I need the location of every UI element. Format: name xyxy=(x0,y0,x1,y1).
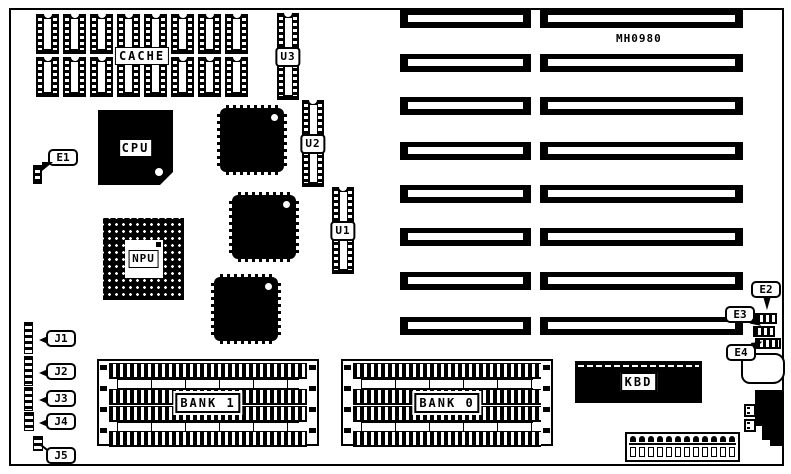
j2-callout: J2 xyxy=(46,363,76,380)
cache-chip xyxy=(225,57,248,97)
power-pin xyxy=(639,436,645,442)
expansion-slot xyxy=(400,185,531,203)
expansion-slot xyxy=(540,228,743,246)
simm-socket-row xyxy=(353,363,541,379)
header-j2 xyxy=(24,356,33,386)
simm-socket-row xyxy=(109,363,307,379)
power-socket xyxy=(630,447,636,457)
simm-detail-row xyxy=(117,379,299,389)
power-pin xyxy=(684,436,690,442)
cache-chip xyxy=(63,57,86,97)
cache-chip xyxy=(90,57,113,97)
expansion-slot xyxy=(400,97,531,115)
expansion-slot xyxy=(400,142,531,160)
cache-column xyxy=(36,14,59,97)
qfp-chip-body xyxy=(214,277,278,341)
power-pin xyxy=(648,436,654,442)
qfp-chip-1 xyxy=(217,105,287,175)
cache-chip xyxy=(171,14,194,54)
qfp-chip-3 xyxy=(211,274,281,344)
expansion-slot xyxy=(540,10,743,28)
cache-label: CACHE xyxy=(115,47,169,65)
power-socket xyxy=(702,447,708,457)
e1-label: E1 xyxy=(56,151,69,164)
power-connector xyxy=(625,432,740,462)
u1-label: U1 xyxy=(330,221,355,241)
power-pin xyxy=(702,436,708,442)
power-pin xyxy=(711,436,717,442)
power-pin xyxy=(657,436,663,442)
din-connector-body xyxy=(755,390,784,426)
power-pin xyxy=(693,436,699,442)
cache-chip xyxy=(198,57,221,97)
cpu-label: CPU xyxy=(120,140,152,156)
cache-chip-group: CACHE xyxy=(36,14,248,97)
expansion-slot xyxy=(540,185,743,203)
j4-callout: J4 xyxy=(46,413,76,430)
qfp-pin1-dot xyxy=(283,201,290,208)
power-socket xyxy=(639,447,645,457)
expansion-slot xyxy=(400,54,531,72)
e2-callout: E2 xyxy=(751,281,781,298)
cache-chip xyxy=(90,14,113,54)
cpu-pin1-dot xyxy=(155,168,163,176)
power-pin xyxy=(729,436,735,442)
rom-chip-u1: U1 xyxy=(332,187,354,274)
cache-column xyxy=(225,14,248,97)
e1-callout: E1 xyxy=(48,149,78,166)
power-socket xyxy=(657,447,663,457)
j4-callout-tail xyxy=(39,419,48,427)
j1-label: J1 xyxy=(54,332,67,345)
e1-callout-tail xyxy=(42,162,53,171)
din-port-detail xyxy=(744,404,756,417)
npu-label: NPU xyxy=(128,250,159,268)
qfp-chip-body xyxy=(232,195,296,259)
simm-socket-row xyxy=(109,431,307,447)
power-pin-row xyxy=(630,436,735,442)
e3-label: E3 xyxy=(733,308,746,321)
header-j4 xyxy=(24,412,34,431)
cache-column xyxy=(198,14,221,97)
simm-socket-row xyxy=(353,431,541,447)
simm-detail-row xyxy=(361,379,533,389)
u3-label: U3 xyxy=(275,47,300,67)
expansion-slot xyxy=(540,317,743,335)
j2-label: J2 xyxy=(54,365,67,378)
expansion-slot xyxy=(540,97,743,115)
qfp-chip-body xyxy=(220,108,284,172)
expansion-slot xyxy=(400,10,531,28)
e2-callout-tail xyxy=(763,296,771,310)
simm-bank-1: BANK 1 xyxy=(97,359,319,446)
power-pin xyxy=(675,436,681,442)
j3-callout-tail xyxy=(39,396,48,404)
expansion-slot xyxy=(400,228,531,246)
cache-chip xyxy=(225,14,248,54)
power-socket xyxy=(711,447,717,457)
expansion-slot xyxy=(400,272,531,290)
expansion-slot xyxy=(540,142,743,160)
expansion-slot xyxy=(540,272,743,290)
power-pin xyxy=(720,436,726,442)
din-port-detail xyxy=(744,419,756,432)
qfp-chip-2 xyxy=(229,192,299,262)
npu-socket-center: NPU xyxy=(125,240,163,278)
cache-column xyxy=(63,14,86,97)
simm-bank-0: BANK 0 xyxy=(341,359,553,446)
power-socket xyxy=(666,447,672,457)
rom-chip-u2: U2 xyxy=(302,100,324,187)
j1-callout: J1 xyxy=(46,330,76,347)
cache-chip xyxy=(171,57,194,97)
cache-chip xyxy=(36,57,59,97)
kbd-chip: KBD xyxy=(575,361,702,403)
cache-chip xyxy=(36,14,59,54)
cache-chip xyxy=(198,14,221,54)
j1-callout-tail xyxy=(39,336,48,344)
e2-label: E2 xyxy=(759,283,772,296)
j3-label: J3 xyxy=(54,392,67,405)
cache-column xyxy=(90,14,113,97)
motherboard-diagram: MH0980 CACHE U3 U2 U1 CPU E1 NPU xyxy=(0,0,791,474)
header-j1 xyxy=(24,322,33,354)
part-number: MH0980 xyxy=(616,32,662,45)
power-socket xyxy=(729,447,735,457)
u2-label: U2 xyxy=(300,134,325,154)
power-pin xyxy=(630,436,636,442)
npu-socket: NPU xyxy=(103,218,184,300)
power-socket xyxy=(648,447,654,457)
expansion-slot xyxy=(540,54,743,72)
e3-callout: E3 xyxy=(725,306,755,323)
power-socket xyxy=(675,447,681,457)
bank1-label: BANK 1 xyxy=(175,393,240,413)
din-connector-base xyxy=(770,440,784,446)
e4-callout: E4 xyxy=(726,344,756,361)
cache-chip xyxy=(63,14,86,54)
din-connector-step xyxy=(762,426,784,440)
power-socket-row xyxy=(630,447,735,457)
cpu-chip: CPU xyxy=(98,110,173,185)
j5-label: J5 xyxy=(54,449,67,462)
npu-pin1-dot xyxy=(156,242,161,247)
qfp-pin1-dot xyxy=(271,114,278,121)
qfp-pin1-dot xyxy=(265,283,272,290)
header-j3 xyxy=(24,387,33,411)
j5-callout: J5 xyxy=(46,447,76,464)
j4-label: J4 xyxy=(54,415,67,428)
j2-callout-tail xyxy=(39,369,48,377)
cache-column xyxy=(171,14,194,97)
power-socket xyxy=(684,447,690,457)
j3-callout: J3 xyxy=(46,390,76,407)
e4-label: E4 xyxy=(734,346,747,359)
rom-chip-u3: U3 xyxy=(277,13,299,100)
power-connector-bar xyxy=(629,443,736,445)
bank0-label: BANK 0 xyxy=(414,393,479,413)
power-pin xyxy=(666,436,672,442)
power-socket xyxy=(720,447,726,457)
expansion-slot xyxy=(400,317,531,335)
kbd-label: KBD xyxy=(620,372,658,392)
power-socket xyxy=(693,447,699,457)
jumper-e1 xyxy=(33,165,42,184)
